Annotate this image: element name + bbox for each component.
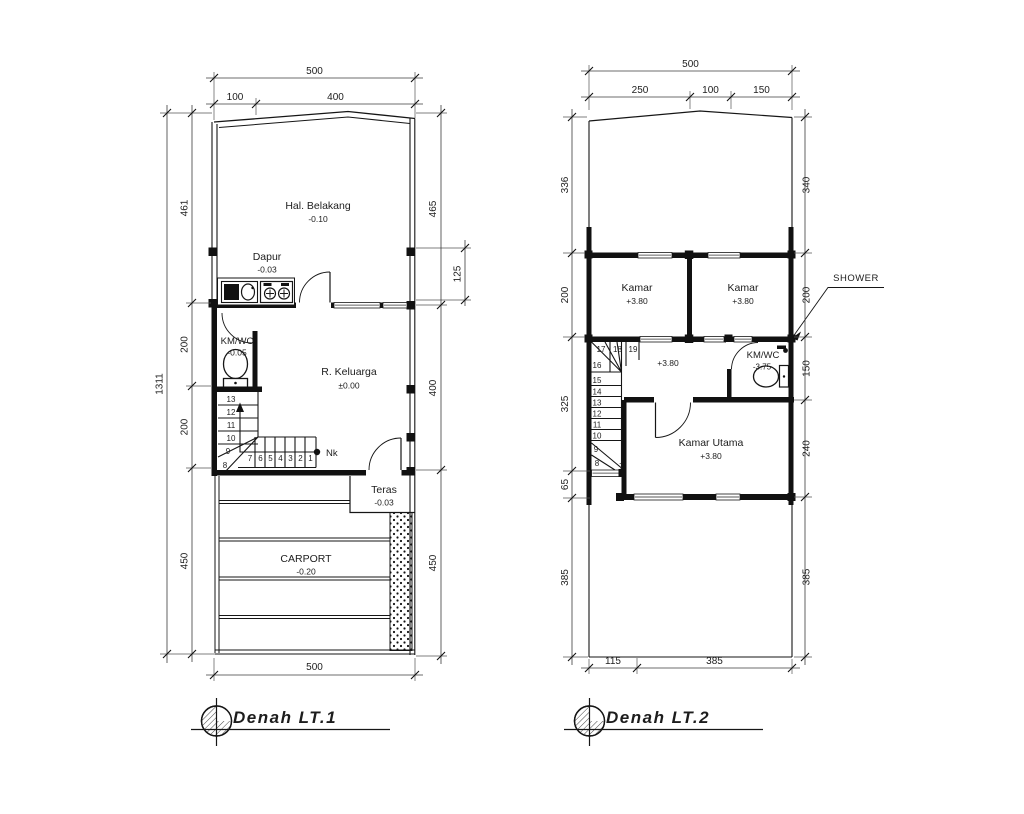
level-r-keluarga: ±0.00: [338, 381, 359, 391]
stair-num: 2: [298, 454, 303, 463]
level-kmwc-lt2: -3.75: [753, 363, 772, 372]
dim-lt2-bottom-385: 385: [706, 656, 723, 667]
stair-num: 18: [613, 345, 622, 354]
dim-lt2-right-385: 385: [802, 568, 813, 585]
lt2-title-block: Denah LT.2: [564, 698, 763, 746]
dim-lt1-top-400: 400: [327, 92, 344, 103]
door-arc-dapur: [300, 272, 331, 303]
level-kamar1: +3.80: [626, 296, 648, 306]
stair-num: 3: [288, 454, 293, 463]
room-label-kamar2: Kamar: [728, 282, 759, 294]
plan-title-lt2: Denah LT.2: [606, 708, 710, 727]
level-kamar2: +3.80: [732, 296, 754, 306]
level-kmwc-lt1: -0.05: [227, 348, 247, 358]
dim-lt1-left-461: 461: [180, 199, 191, 216]
room-label-hal-belakang: Hal. Belakang: [285, 200, 351, 212]
plan-lt2: 17 18 19 16 15 14 13 12 11 10 9 8 7: [560, 59, 884, 746]
stair-num: 16: [593, 361, 602, 370]
level-carport: -0.20: [296, 567, 316, 577]
stairs-lt2: 17 18 19 16 15 14 13 12 11 10 9 8 7: [592, 342, 640, 477]
shower-label: SHOWER: [833, 273, 879, 284]
level-kamar-utama: +3.80: [700, 451, 722, 461]
stair-num: 14: [593, 388, 602, 397]
stair-num: 11: [593, 421, 602, 430]
dim-lt2-top-100: 100: [702, 85, 719, 96]
stairs-lt1: 13 12 11 10 9 8 7 6 5 4 3 2 1 Nk: [218, 392, 338, 473]
room-label-kamar-utama: Kamar Utama: [679, 437, 744, 449]
stair-num: 19: [629, 345, 638, 354]
door-arc-entrance: [369, 438, 401, 470]
lt1-title-block: Denah LT.1: [191, 698, 390, 746]
dim-lt1-right-465: 465: [428, 200, 439, 217]
stair-num: 8: [223, 461, 228, 470]
stair-num: 1: [308, 454, 313, 463]
stair-num: 9: [226, 447, 231, 456]
dim-lt2-right-150: 150: [802, 360, 813, 377]
dim-lt1-left-200a: 200: [180, 336, 191, 353]
dim-lt2-left-325: 325: [560, 395, 571, 412]
dim-lt1-right-400: 400: [428, 379, 439, 396]
dim-lt2-left-200: 200: [560, 286, 571, 303]
stair-num: 10: [593, 432, 602, 441]
stair-num: 7: [248, 454, 253, 463]
dim-lt2-top-500: 500: [682, 59, 699, 70]
stair-num: 12: [593, 410, 602, 419]
lt1-dimensions: 500 100 400 1311 461 200 200 450 465 125…: [155, 66, 472, 681]
room-label-kamar1: Kamar: [622, 282, 653, 294]
room-label-dapur: Dapur: [253, 251, 282, 263]
room-label-kmwc-lt1: KM/WC: [221, 336, 254, 347]
dim-lt1-left-450: 450: [180, 552, 191, 569]
level-hal-belakang: -0.10: [308, 214, 328, 224]
floorplan-sheet: 13 12 11 10 9 8 7 6 5 4 3 2 1 Nk: [0, 0, 1024, 814]
stair-num: 17: [597, 345, 606, 354]
dim-lt1-right-450: 450: [428, 554, 439, 571]
stair-num: 4: [278, 454, 283, 463]
level-dapur: -0.03: [257, 265, 277, 275]
room-label-carport: CARPORT: [280, 553, 332, 565]
stair-numbers-lt1: 13 12 11 10 9 8 7 6 5 4 3 2 1: [223, 395, 314, 470]
floorplan-drawing: 13 12 11 10 9 8 7 6 5 4 3 2 1 Nk: [0, 0, 1024, 814]
stair-num: 6: [258, 454, 263, 463]
dim-lt2-right-200: 200: [802, 286, 813, 303]
room-label-kmwc-lt2: KM/WC: [747, 350, 780, 361]
nok-label: Nk: [326, 448, 338, 459]
stair-num: 12: [227, 408, 236, 417]
stair-num: 13: [227, 395, 236, 404]
dim-lt1-left-1311: 1311: [155, 373, 166, 395]
dim-lt2-left-385: 385: [560, 569, 571, 586]
dim-lt2-top-250: 250: [632, 85, 649, 96]
stair-num: 11: [227, 421, 236, 430]
level-hall: +3.80: [657, 358, 679, 368]
hatch-strip: [390, 513, 412, 651]
stove-icon: [261, 282, 293, 303]
dim-lt2-right-240: 240: [802, 440, 813, 457]
dim-lt2-bottom-115: 115: [605, 656, 621, 667]
door-arc-kamar-utama: [656, 403, 691, 438]
plan-title-lt1: Denah LT.1: [233, 708, 337, 727]
dim-lt1-top-100: 100: [227, 92, 244, 103]
room-label-r-keluarga: R. Keluarga: [321, 366, 377, 378]
stair-num: 9: [594, 445, 599, 454]
shower-callout: SHOWER: [792, 273, 884, 341]
dim-lt1-right-125: 125: [453, 265, 464, 282]
stair-up-arrow: [236, 403, 244, 413]
dim-lt2-left-65: 65: [560, 479, 571, 491]
dim-lt2-left-336: 336: [560, 176, 571, 193]
level-teras: -0.03: [374, 498, 394, 508]
plan-lt1: 13 12 11 10 9 8 7 6 5 4 3 2 1 Nk: [155, 66, 472, 746]
dim-lt1-top-500: 500: [306, 66, 323, 77]
kitchen-counter: [218, 278, 295, 305]
nok-dot: [314, 449, 320, 455]
stair-num: 10: [227, 434, 236, 443]
room-label-teras: Teras: [371, 484, 397, 496]
stair-num: 8: [595, 459, 600, 468]
dim-lt1-left-200b: 200: [180, 418, 191, 435]
stair-num: 5: [268, 454, 273, 463]
kitchen-sink-icon: [222, 282, 258, 303]
stair-num: 15: [593, 376, 602, 385]
lt2-upper-wall: [585, 251, 796, 260]
stair-num: 13: [593, 399, 602, 408]
dim-lt2-right-340: 340: [802, 176, 813, 193]
dim-lt2-top-150: 150: [753, 85, 770, 96]
dim-lt1-bottom-500: 500: [306, 662, 323, 673]
